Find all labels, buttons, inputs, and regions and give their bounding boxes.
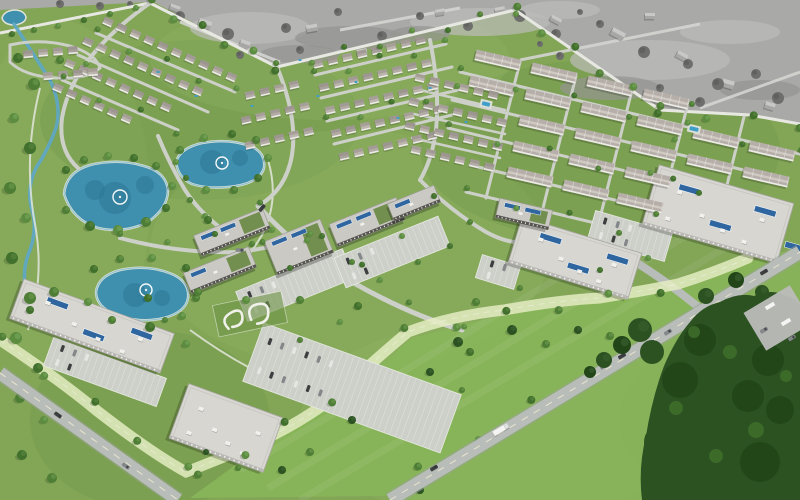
backyard-pool [317, 95, 320, 97]
canopy-blob [684, 324, 716, 356]
tree-highlight [339, 320, 342, 323]
backyard-pool [397, 117, 400, 119]
canopy-blob [662, 362, 698, 398]
tree-highlight [311, 60, 314, 63]
tree-highlight [541, 30, 545, 34]
tree-highlight [197, 471, 201, 475]
tree-highlight [21, 451, 26, 456]
tree-highlight [687, 120, 690, 123]
tree-highlight [331, 399, 335, 403]
tree-highlight [149, 323, 154, 328]
tree-highlight [599, 268, 602, 271]
tree-highlight [51, 474, 56, 479]
aerial-community-render [0, 0, 800, 500]
tree-highlight [558, 307, 562, 311]
tree-highlight [173, 16, 177, 20]
tree-highlight [650, 171, 653, 174]
tree-highlight [271, 228, 274, 231]
tree-highlight [15, 333, 21, 339]
tree-highlight [109, 12, 112, 15]
tree-highlight [515, 11, 518, 14]
tree-highlight [309, 232, 312, 235]
canopy-blob [740, 442, 780, 482]
backyard-pool [465, 121, 468, 123]
single-family-house [87, 68, 98, 78]
canopy-highlight [709, 449, 723, 463]
tree-highlight [214, 232, 217, 235]
tree-highlight [545, 341, 549, 345]
tree-highlight [145, 218, 150, 223]
tree-highlight [456, 324, 460, 328]
tree-highlight [516, 206, 519, 209]
grayscale-tree [696, 98, 701, 103]
tree-highlight [391, 99, 394, 102]
tree-highlight [463, 324, 466, 327]
canopy-highlight [723, 345, 737, 359]
tree-highlight [257, 175, 261, 179]
canopy-blob [644, 424, 680, 460]
grayscale-tree [128, 2, 131, 5]
tree-highlight [655, 212, 658, 215]
tree-highlight [475, 299, 479, 303]
tree-highlight [179, 147, 183, 151]
tree-highlight [65, 167, 69, 171]
tree-highlight [245, 297, 249, 301]
tree-highlight [57, 24, 60, 27]
tree-highlight [37, 364, 42, 369]
tree-highlight [59, 57, 63, 61]
tree-highlight [348, 69, 351, 72]
tree-highlight [469, 349, 473, 353]
tree-highlight [753, 112, 757, 116]
tree-highlight [313, 69, 316, 72]
grayscale-tree [57, 1, 61, 5]
tree-highlight [205, 450, 208, 453]
tree-highlight [65, 207, 69, 211]
tree-highlight [133, 155, 137, 159]
tree-highlight [87, 299, 91, 303]
lake-deep-water [200, 150, 224, 174]
tree-highlight [205, 187, 209, 191]
tree-highlight [275, 61, 278, 64]
tree-highlight [33, 28, 36, 31]
tree-highlight [433, 194, 436, 197]
tree-highlight [175, 160, 178, 163]
tree-highlight [236, 86, 239, 89]
tree-highlight [460, 66, 463, 69]
tree-highlight [379, 44, 382, 47]
tree-highlight [414, 53, 417, 56]
tree-highlight [25, 214, 30, 219]
tree-highlight [233, 187, 237, 191]
tree-highlight [360, 115, 363, 118]
backyard-pool [251, 105, 254, 107]
tree-highlight [497, 142, 500, 145]
tree-highlight [577, 327, 581, 331]
tree-highlight [321, 234, 324, 237]
tree-highlight [742, 142, 745, 145]
tree-highlight [449, 244, 452, 247]
tree-highlight [135, 6, 138, 9]
tree-highlight [306, 238, 309, 241]
tree-highlight [660, 103, 664, 107]
tree-highlight [185, 265, 189, 269]
grayscale-tree [578, 10, 581, 13]
tree-highlight [519, 286, 522, 289]
tree-highlight [63, 74, 66, 77]
tree-highlight [408, 300, 411, 303]
tree-highlight [598, 166, 601, 169]
tree-highlight [607, 290, 611, 294]
tree-highlight [251, 242, 254, 245]
grayscale-field [520, 1, 600, 19]
tree-highlight [469, 220, 472, 223]
tree-highlight [574, 44, 578, 48]
tree-highlight [657, 110, 661, 114]
tree-highlight [203, 135, 207, 139]
tree-highlight [107, 153, 111, 157]
tree-highlight [202, 22, 206, 26]
tree-highlight [530, 397, 534, 401]
grayscale-tree [773, 93, 779, 99]
tree-highlight [417, 463, 421, 467]
tree-highlight [33, 79, 39, 85]
tree-highlight [187, 464, 191, 468]
tree-highlight [262, 240, 265, 243]
tree-highlight [119, 256, 123, 260]
fountain-jet [145, 289, 147, 291]
tree-highlight [284, 419, 288, 423]
tree-highlight [53, 288, 58, 293]
tree-highlight [29, 143, 35, 149]
tree-highlight [274, 67, 278, 71]
tree-highlight [417, 260, 420, 263]
tree-highlight [197, 289, 201, 293]
canopy-blob [698, 362, 726, 390]
tree-highlight [98, 98, 101, 101]
tree-highlight [357, 303, 361, 307]
canopy-blob [732, 380, 764, 412]
fountain-jet [119, 196, 121, 198]
tree-highlight [204, 214, 207, 217]
single-family-house [52, 47, 63, 57]
tree-highlight [85, 62, 88, 65]
tree-highlight [164, 318, 167, 321]
tree-highlight [165, 205, 169, 209]
tree-highlight [13, 114, 18, 119]
tree-highlight [231, 131, 235, 135]
single-family-house [37, 49, 48, 59]
backyard-pool [195, 95, 198, 97]
grayscale-tree [639, 47, 645, 53]
tree-highlight [189, 198, 192, 201]
tree-highlight [515, 87, 518, 90]
tree-highlight [403, 325, 407, 329]
grayscale-tree [752, 70, 757, 75]
single-family-house [42, 72, 53, 82]
tree-highlight [632, 84, 636, 88]
tree-highlight [461, 388, 464, 391]
grayscale-tree [713, 79, 719, 85]
grayscale-tree [335, 9, 339, 13]
grayscale-tree [538, 42, 541, 45]
tree-highlight [325, 115, 328, 118]
backyard-pool [299, 59, 302, 61]
grayscale-tree [378, 32, 383, 37]
grayscale-tree [557, 53, 561, 57]
tree-highlight [83, 157, 87, 161]
tree-highlight [207, 217, 211, 221]
tree-highlight [17, 54, 22, 59]
tree-highlight [401, 234, 404, 237]
lake-deep-water [154, 290, 170, 306]
single-family-house [22, 50, 33, 60]
tree-highlight [343, 44, 346, 47]
tree-highlight [466, 186, 469, 189]
tree-highlight [447, 28, 450, 31]
canopy-blob [640, 340, 664, 364]
lake-deep-water [136, 176, 154, 194]
backyard-pool [157, 71, 160, 73]
grayscale-tree [657, 85, 661, 89]
tree-highlight [361, 262, 364, 265]
tree-highlight [167, 240, 170, 243]
tree-highlight [457, 338, 462, 343]
grayscale-tree [237, 52, 241, 56]
tree-highlight [185, 176, 188, 179]
tree-highlight [43, 417, 47, 421]
tree-highlight [97, 27, 100, 30]
tree-highlight [351, 417, 355, 421]
tree-highlight [479, 12, 482, 15]
tree-highlight [43, 373, 47, 377]
tree-highlight [309, 449, 313, 453]
tree-highlight [171, 183, 175, 187]
grayscale-tree [223, 29, 229, 35]
canopy-highlight [748, 422, 764, 438]
tree-highlight [166, 56, 169, 59]
grayscale-tree [297, 47, 301, 51]
tree-highlight [89, 222, 94, 227]
tree-highlight [379, 53, 382, 56]
tree-highlight [698, 190, 701, 193]
tree-highlight [94, 399, 98, 403]
fountain-jet [221, 162, 223, 164]
tree-highlight [11, 32, 14, 35]
single-family-house [67, 46, 78, 56]
canopy-highlight [780, 370, 792, 382]
tree-highlight [351, 260, 354, 263]
canopy-highlight [688, 326, 700, 338]
tree-highlight [505, 308, 509, 312]
tree-highlight [674, 137, 677, 140]
tree-highlight [516, 4, 520, 8]
tree-highlight [140, 107, 143, 110]
tree-highlight [155, 163, 159, 167]
tree-highlight [647, 256, 650, 259]
tree-highlight [151, 255, 155, 259]
tree-highlight [224, 42, 228, 46]
grayscale-tree [597, 21, 601, 25]
tree-highlight [549, 146, 552, 149]
tree-highlight [111, 317, 115, 321]
tree-highlight [198, 79, 201, 82]
tree-highlight [691, 102, 694, 105]
tree-highlight [628, 114, 631, 117]
tree-highlight [511, 326, 516, 331]
tree-highlight [569, 210, 572, 213]
tree-highlight [29, 307, 33, 311]
tree-highlight [456, 84, 459, 87]
tree-highlight [83, 18, 86, 21]
tree-highlight [267, 155, 271, 159]
tree-highlight [181, 313, 185, 317]
tree-highlight [281, 467, 285, 471]
tree-highlight [429, 369, 433, 373]
tree-highlight [117, 226, 122, 231]
grayscale-tree [282, 24, 287, 29]
tree-highlight [618, 230, 621, 233]
lake-deep-water [232, 150, 248, 166]
tree-highlight [609, 333, 613, 337]
tree-highlight [289, 266, 292, 269]
grayscale-building [644, 13, 655, 21]
lake [64, 162, 168, 230]
grayscale-tree [684, 60, 689, 65]
tree-highlight [29, 293, 35, 299]
tree-highlight [574, 93, 577, 96]
tree-highlight [426, 99, 429, 102]
car [235, 248, 244, 253]
tree-highlight [9, 183, 15, 189]
grayscale-tree [97, 3, 101, 7]
backyard-pool [429, 87, 432, 89]
tree-highlight [444, 38, 447, 41]
tree-highlight [119, 232, 122, 235]
canopy-highlight [669, 401, 683, 415]
single-family-house [72, 69, 83, 79]
tree-highlight [379, 278, 382, 281]
tree-highlight [599, 70, 603, 74]
tree-highlight [448, 122, 451, 125]
canopy-blob [677, 455, 707, 485]
tree-highlight [299, 338, 302, 341]
tree-highlight [185, 341, 189, 345]
tree-highlight [660, 290, 664, 294]
tree-highlight [147, 295, 151, 299]
tree-highlight [11, 253, 17, 259]
tree-highlight [253, 47, 257, 51]
tree-highlight [705, 115, 709, 119]
lake-deep-water [85, 180, 105, 200]
tree-highlight [93, 266, 97, 270]
tree-highlight [237, 466, 240, 469]
tree-highlight [129, 49, 132, 52]
tree-highlight [299, 297, 303, 301]
tree-highlight [1, 334, 5, 338]
tree-highlight [255, 137, 259, 141]
tree-highlight [673, 176, 676, 179]
aerial-render-stage [0, 0, 800, 500]
tree-highlight [411, 28, 414, 31]
backyard-pool [355, 81, 358, 83]
tree-highlight [245, 452, 249, 456]
canopy-blob [766, 396, 794, 424]
grayscale-tree [417, 13, 421, 17]
tree-highlight [176, 131, 179, 134]
tree-highlight [136, 438, 140, 442]
tree-highlight [259, 200, 262, 203]
